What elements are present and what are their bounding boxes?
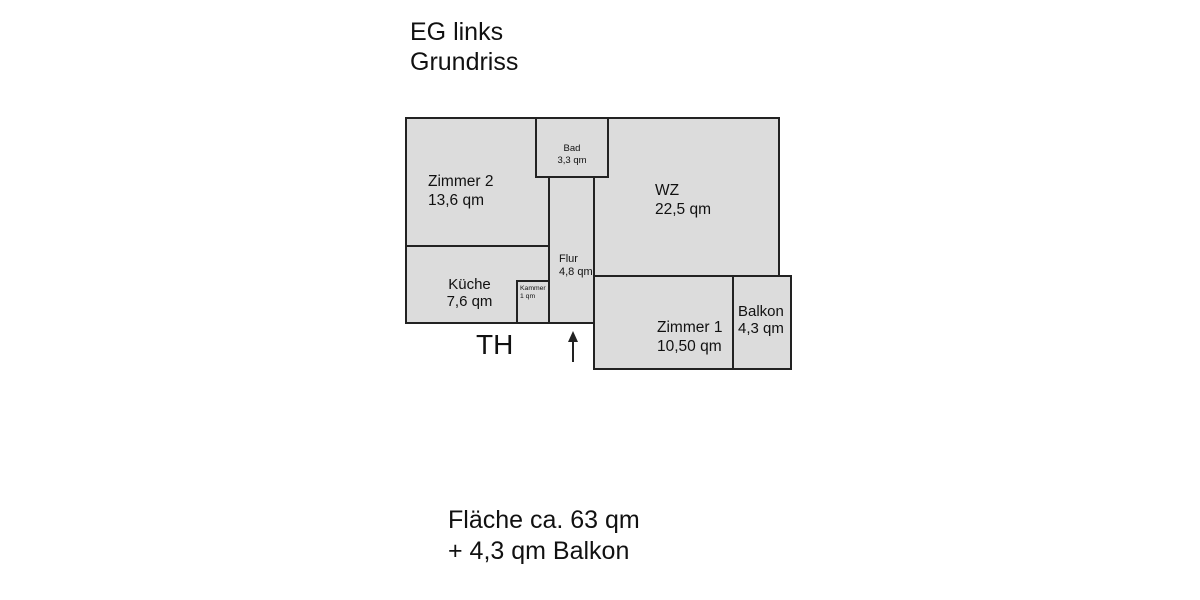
title-line-2: Grundriss xyxy=(410,47,518,77)
room-name: Zimmer 1 xyxy=(657,318,722,337)
room-label-kammer: Kammer 1 qm xyxy=(520,285,546,301)
room-area: 3,3 qm xyxy=(537,155,607,167)
room-name: Küche xyxy=(407,276,532,293)
room-label-bad: Bad 3,3 qm xyxy=(537,143,607,166)
room-area: 10,50 qm xyxy=(657,337,722,356)
room-name: WZ xyxy=(655,181,711,200)
room-label-zimmer2: Zimmer 2 13,6 qm xyxy=(428,172,493,210)
entry-arrow-icon xyxy=(567,331,579,362)
room-name: Flur xyxy=(559,253,593,266)
floorplan-page: { "title": { "line1": "EG links", "line2… xyxy=(0,0,1200,600)
total-area-line-2: + 4,3 qm Balkon xyxy=(448,536,640,567)
room-zimmer1: Zimmer 1 10,50 qm xyxy=(593,275,734,370)
room-label-wz: WZ 22,5 qm xyxy=(655,181,711,219)
arrow-head xyxy=(568,331,578,342)
room-kammer: Kammer 1 qm xyxy=(516,280,550,324)
room-area: 4,8 qm xyxy=(559,266,593,279)
room-label-zimmer1: Zimmer 1 10,50 qm xyxy=(657,318,722,356)
title-line-1: EG links xyxy=(410,17,518,47)
room-area: 4,3 qm xyxy=(738,320,784,337)
room-balkon: Balkon 4,3 qm xyxy=(732,275,792,370)
room-area: 7,6 qm xyxy=(407,293,532,310)
total-area-text: Fläche ca. 63 qm + 4,3 qm Balkon xyxy=(448,505,640,567)
room-zimmer2: Zimmer 2 13,6 qm xyxy=(405,117,550,247)
total-area-line-1: Fläche ca. 63 qm xyxy=(448,505,640,536)
page-title: EG links Grundriss xyxy=(410,17,518,77)
room-label-flur: Flur 4,8 qm xyxy=(559,253,593,279)
room-bad: Bad 3,3 qm xyxy=(535,117,609,178)
room-label-kueche: Küche 7,6 qm xyxy=(407,276,532,310)
room-name: Bad xyxy=(537,143,607,155)
room-area: 1 qm xyxy=(520,293,546,301)
room-name: Zimmer 2 xyxy=(428,172,493,191)
arrow-stem xyxy=(572,342,574,362)
floorplan: Zimmer 2 13,6 qm Küche 7,6 qm WZ 22,5 qm… xyxy=(405,117,795,372)
room-wz: WZ 22,5 qm xyxy=(593,117,780,277)
room-name: Kammer xyxy=(520,285,546,293)
room-label-balkon: Balkon 4,3 qm xyxy=(738,303,784,337)
room-name: Balkon xyxy=(738,303,784,320)
room-area: 22,5 qm xyxy=(655,200,711,219)
room-area: 13,6 qm xyxy=(428,191,493,210)
stairwell-label: TH xyxy=(476,330,513,360)
room-flur: Flur 4,8 qm xyxy=(548,176,595,324)
